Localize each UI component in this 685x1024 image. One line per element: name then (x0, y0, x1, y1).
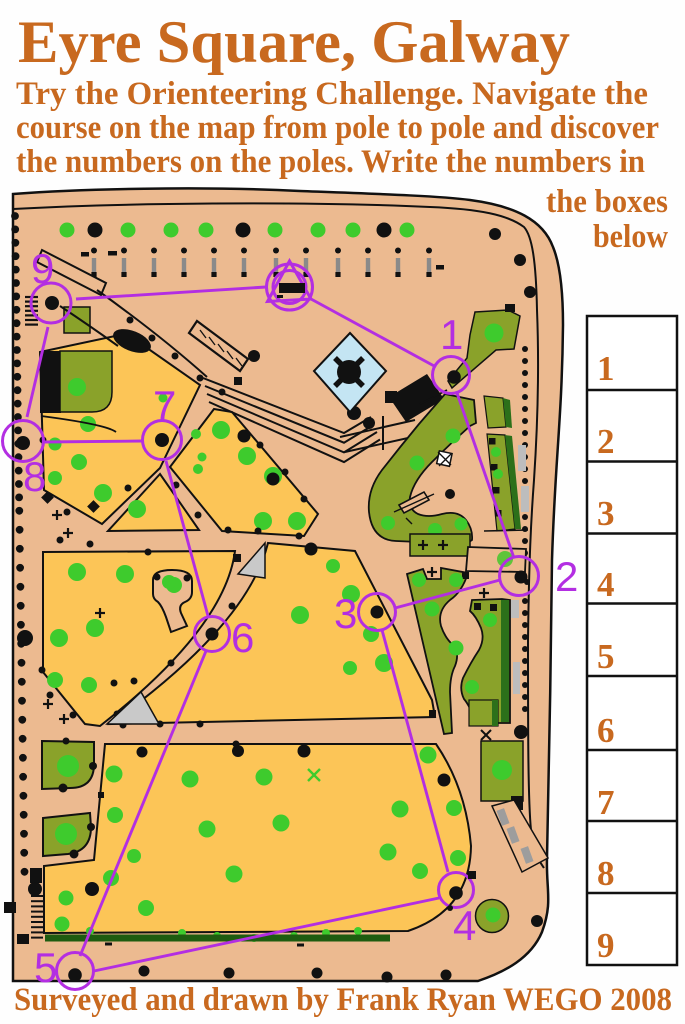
svg-text:9: 9 (597, 926, 615, 965)
svg-text:3: 3 (597, 494, 615, 533)
svg-text:9: 9 (31, 245, 54, 292)
svg-text:3: 3 (334, 590, 357, 637)
svg-text:7: 7 (153, 382, 176, 429)
svg-text:4: 4 (597, 565, 615, 604)
svg-text:2: 2 (555, 553, 578, 600)
svg-text:8: 8 (597, 854, 615, 893)
svg-text:course on the map from pole to: course on the map from pole to pole and … (16, 110, 659, 146)
svg-text:the numbers on the poles. Writ: the numbers on the poles. Write the numb… (16, 144, 645, 180)
svg-text:below: below (593, 219, 668, 255)
svg-text:7: 7 (597, 783, 615, 822)
svg-text:2: 2 (597, 422, 615, 461)
svg-text:the boxes: the boxes (546, 184, 668, 220)
svg-text:1: 1 (597, 349, 615, 388)
svg-text:6: 6 (597, 711, 615, 750)
svg-text:6: 6 (231, 614, 254, 661)
svg-text:1: 1 (440, 311, 463, 358)
svg-text:Eyre Square, Galway: Eyre Square, Galway (18, 9, 570, 75)
svg-text:8: 8 (23, 453, 46, 500)
svg-text:5: 5 (597, 637, 615, 676)
svg-text:Try the Orienteering Challenge: Try the Orienteering Challenge. Navigate… (16, 76, 648, 112)
svg-text:Surveyed and drawn by Frank Ry: Surveyed and drawn by Frank Ryan WEGO 20… (14, 982, 672, 1018)
svg-text:4: 4 (453, 902, 476, 949)
